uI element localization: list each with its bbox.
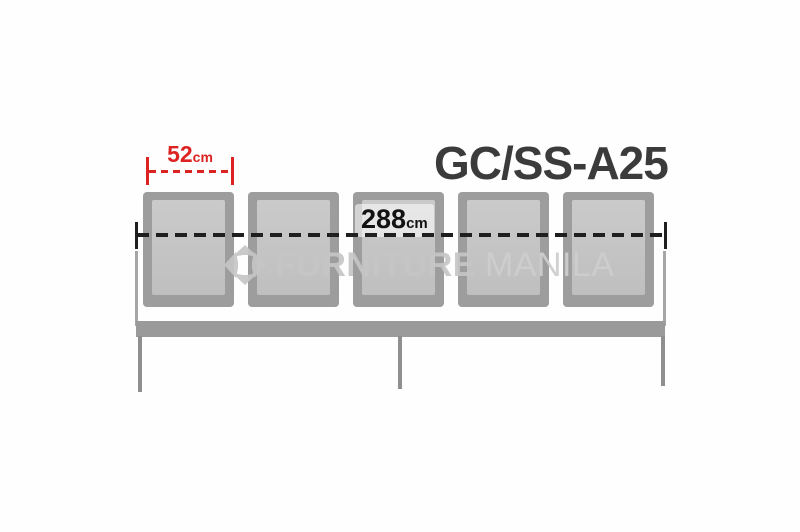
- seat-width-tick-left: [146, 157, 149, 185]
- seat-width-unit: cm: [193, 149, 213, 165]
- seat-width-value: 52: [167, 141, 193, 167]
- seat-back-panel: [152, 200, 225, 295]
- overall-width-unit: cm: [406, 215, 428, 232]
- product-diagram: GC/SS-A25 52cm 288cm FURNITUREMANILA: [0, 0, 800, 532]
- watermark: FURNITUREMANILA: [224, 245, 615, 285]
- watermark-text: FURNITUREMANILA: [275, 246, 615, 285]
- seat-width-dimension-label: 52cm: [145, 141, 235, 168]
- leg-left: [138, 336, 142, 392]
- armrest-right: [663, 251, 666, 326]
- bench-beam: [136, 321, 665, 337]
- watermark-word-furniture: FURNITURE: [275, 246, 476, 284]
- overall-width-tick-right: [664, 222, 667, 249]
- overall-width-value: 288: [361, 204, 406, 235]
- overall-width-tick-left: [135, 222, 138, 249]
- model-code-title: GC/SS-A25: [434, 136, 674, 190]
- seat-width-dashed-line: [149, 170, 232, 173]
- watermark-word-manila: MANILA: [485, 246, 615, 284]
- furniture-manila-diamond-icon: [224, 245, 266, 285]
- leg-right: [661, 336, 665, 386]
- armrest-left: [135, 251, 138, 326]
- leg-center: [398, 336, 402, 389]
- seat-width-tick-right: [231, 157, 234, 185]
- seat-back: [143, 192, 234, 307]
- overall-width-dashed-line: [137, 233, 664, 237]
